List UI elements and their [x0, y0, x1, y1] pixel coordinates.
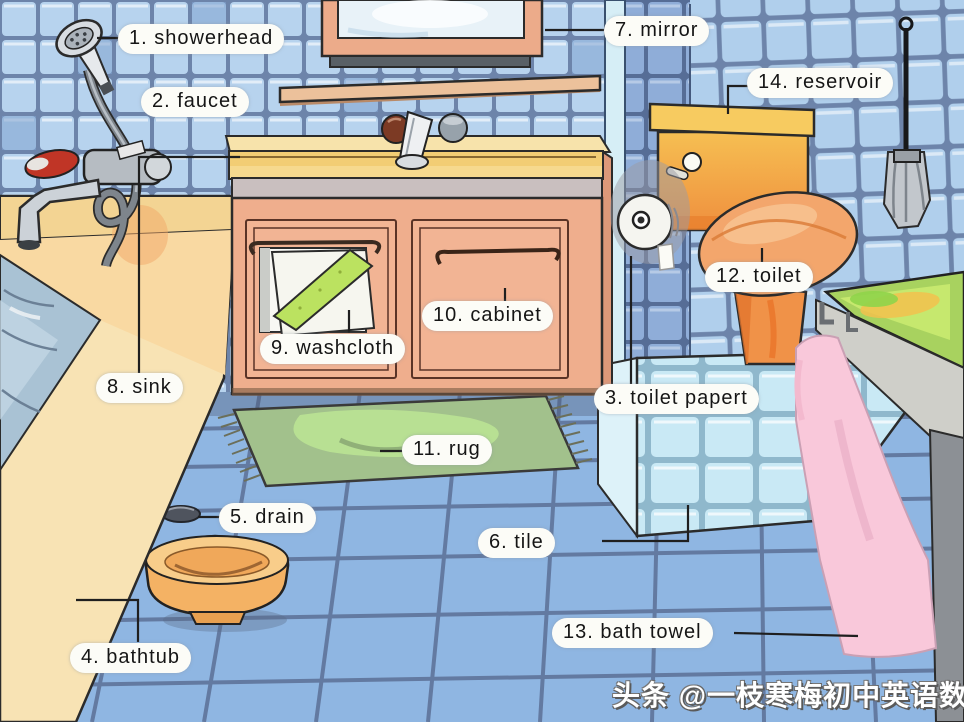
label-washcloth: 9. washcloth	[260, 334, 405, 364]
label-bath-towel: 13. bath towel	[552, 618, 713, 648]
label-toilet: 12. toilet	[705, 262, 813, 292]
mirror	[322, 0, 542, 67]
label-mirror: 7. mirror	[604, 16, 709, 46]
bathroom-vocabulary-diagram: 1. showerhead 2. faucet 3. toilet papert…	[0, 0, 964, 722]
label-sink: 8. sink	[96, 373, 183, 403]
label-cabinet: 10. cabinet	[422, 301, 553, 331]
label-toilet-paper: 3. toilet papert	[594, 384, 759, 414]
mirror-ledge	[330, 56, 530, 67]
label-bathtub: 4. bathtub	[70, 643, 191, 673]
label-reservoir: 14. reservoir	[747, 68, 893, 98]
label-rug: 11. rug	[402, 435, 492, 465]
label-faucet: 2. faucet	[141, 87, 249, 117]
watermark: 头条 @一枝寒梅初中英语数学	[612, 674, 964, 714]
label-tile: 6. tile	[478, 528, 555, 558]
label-drain: 5. drain	[219, 503, 316, 533]
label-showerhead: 1. showerhead	[118, 24, 284, 54]
washcloth	[272, 250, 374, 336]
flush-handle	[683, 153, 701, 171]
basin	[146, 536, 288, 632]
